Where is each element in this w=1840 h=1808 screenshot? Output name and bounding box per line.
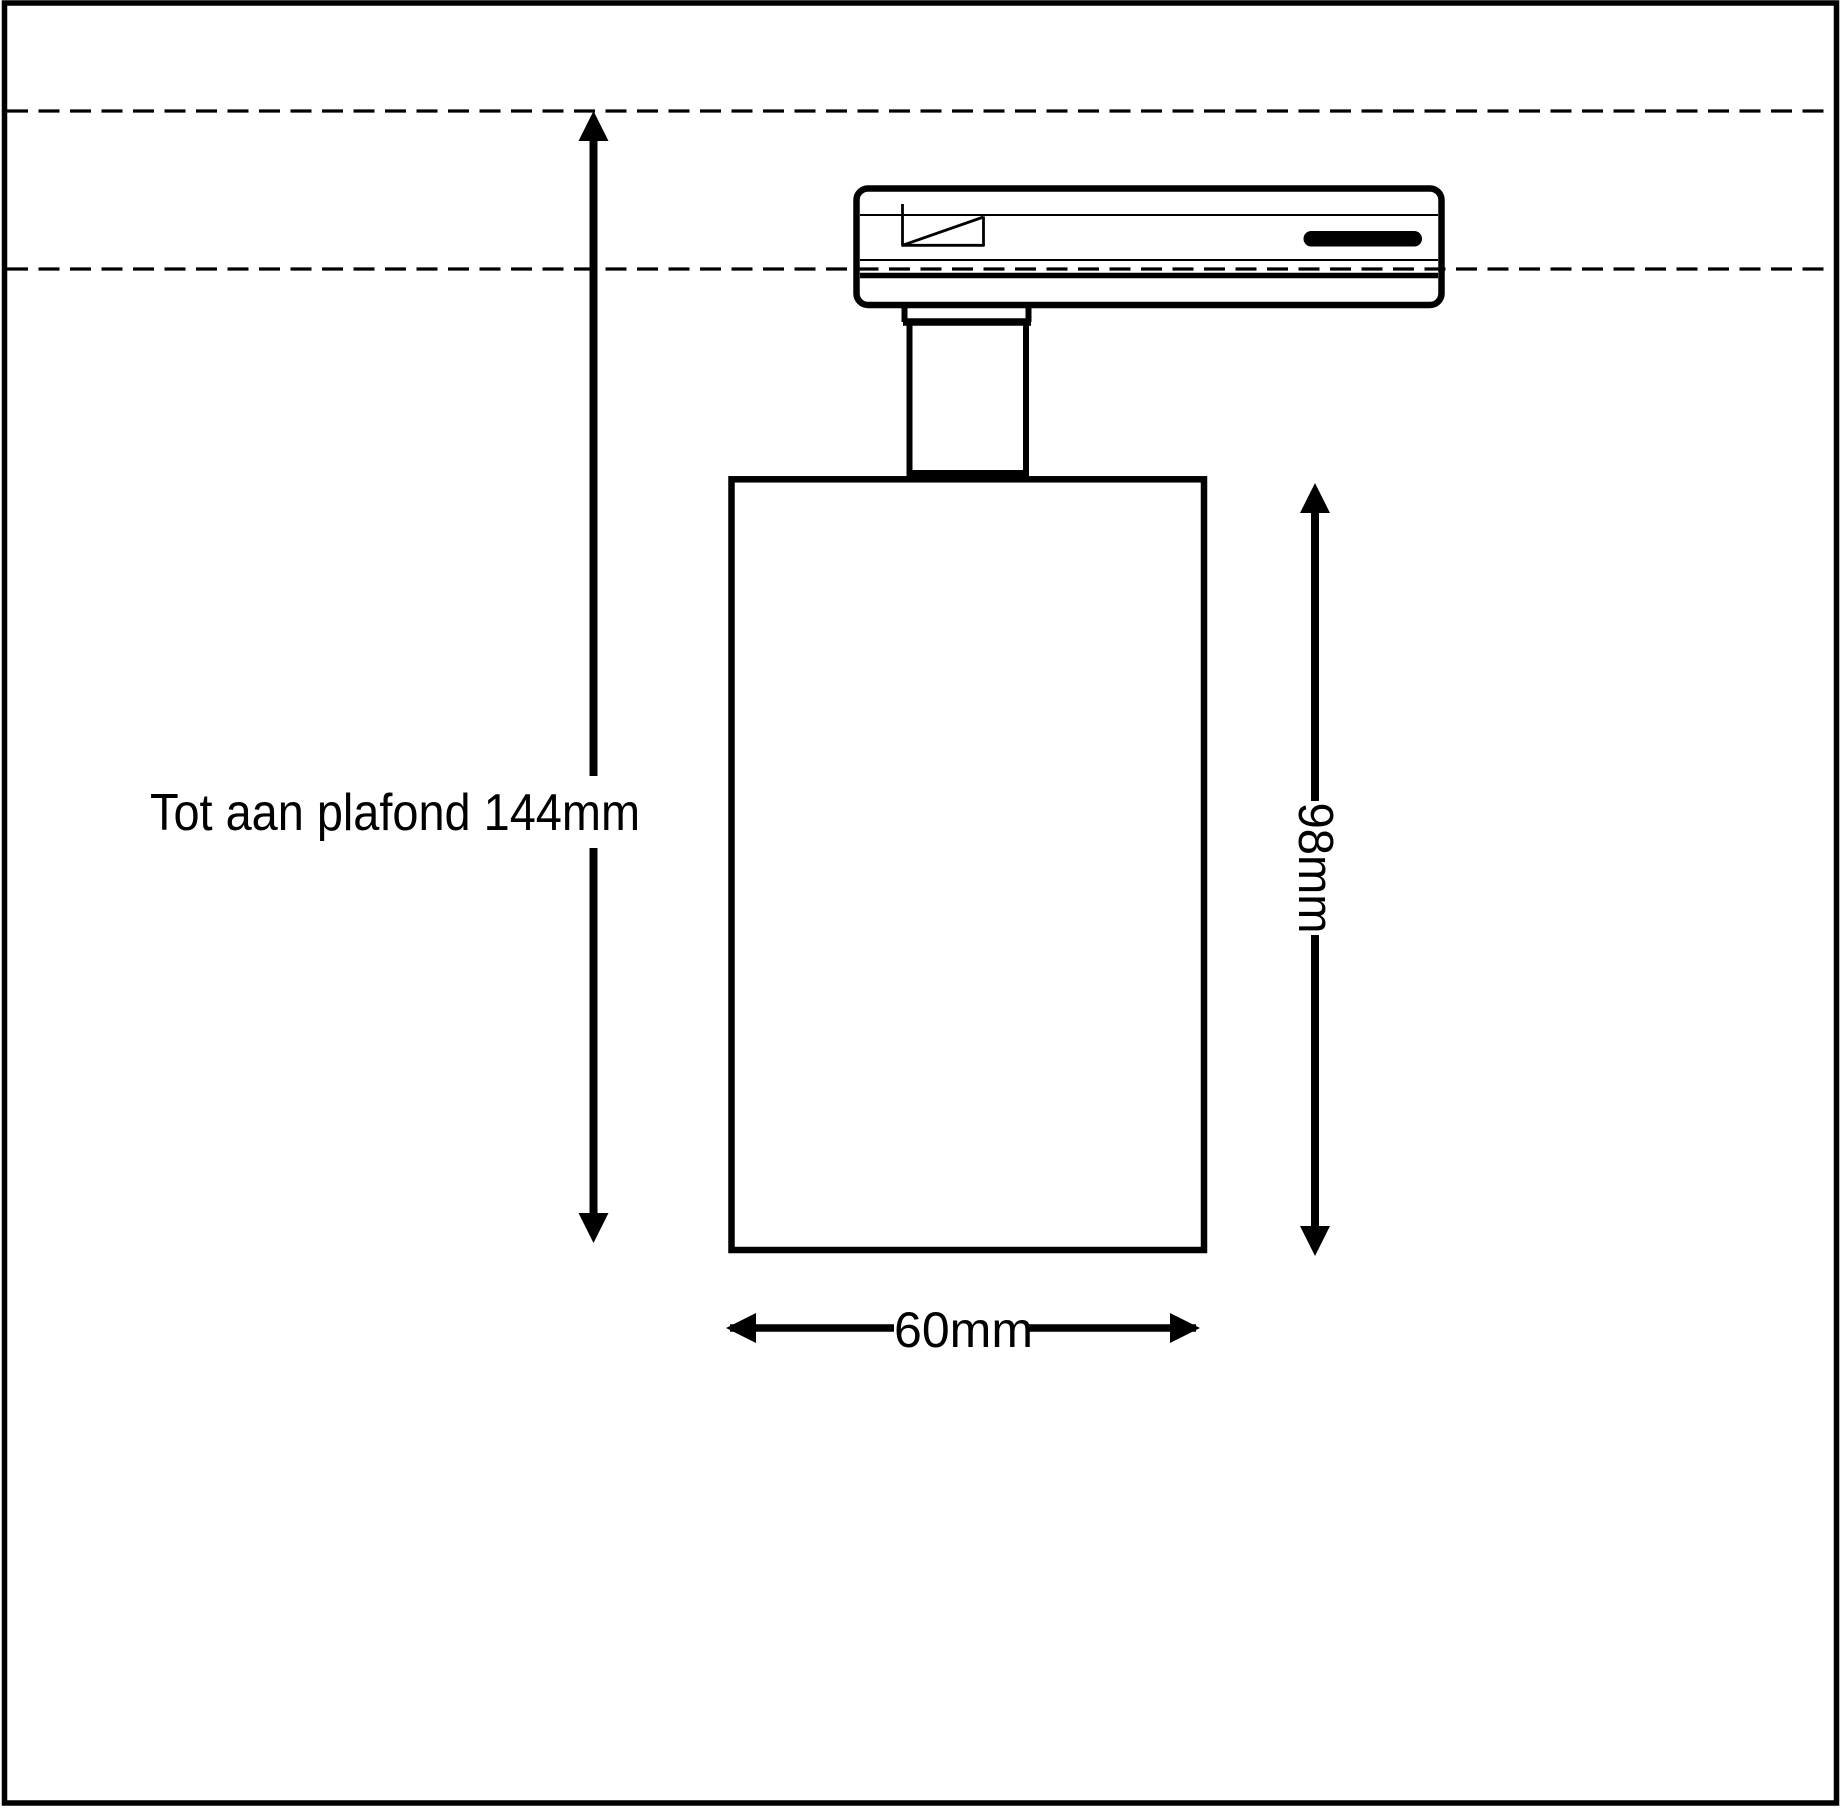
svg-text:98mm: 98mm bbox=[1288, 803, 1342, 934]
svg-text:60mm: 60mm bbox=[894, 1302, 1033, 1358]
svg-text:Tot aan plafond 144mm: Tot aan plafond 144mm bbox=[150, 784, 640, 842]
